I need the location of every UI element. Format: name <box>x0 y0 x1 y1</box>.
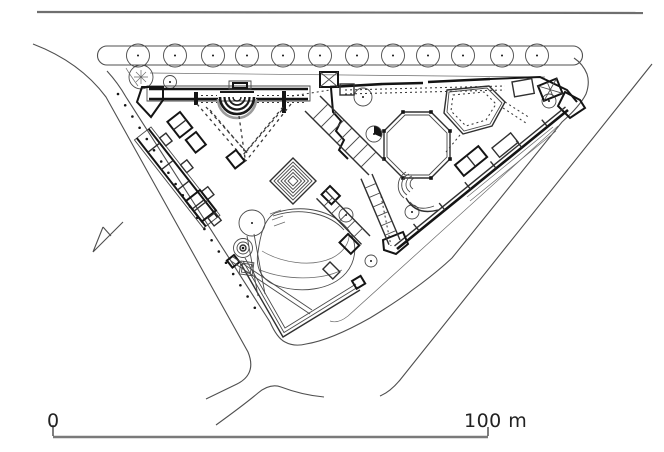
terrace-walk <box>231 257 312 314</box>
tree-icon <box>354 88 372 106</box>
se-facade-wall <box>397 110 568 249</box>
median-strip <box>98 46 583 65</box>
tree-icon <box>382 44 405 67</box>
entrance-doors <box>233 83 247 88</box>
left-road-outer-edge <box>33 44 251 399</box>
se-room <box>455 146 487 176</box>
top-road-edge <box>37 12 643 13</box>
bollard-dot <box>124 104 127 107</box>
tree-icon <box>239 210 265 236</box>
corridor-band <box>305 96 384 175</box>
bollard-dot <box>232 273 235 276</box>
bollard-dot <box>167 171 170 174</box>
west-wall-jagged <box>331 88 348 159</box>
scale-bar-ticks <box>53 425 488 436</box>
link-dashes <box>446 135 460 152</box>
ne-room <box>512 79 534 97</box>
bollard-dot <box>138 126 141 129</box>
scale-start-label: 0 <box>47 410 60 432</box>
bottom-road-edge <box>216 386 324 425</box>
canopy-line <box>150 73 545 77</box>
tree-icon <box>127 44 150 67</box>
tree-icon <box>452 44 475 67</box>
garden-path <box>262 233 349 263</box>
tree-row <box>127 44 549 67</box>
bollard-dot <box>174 183 177 186</box>
median-strip-outline <box>98 46 583 65</box>
fan-auditorium <box>218 92 256 118</box>
octagon-piers <box>382 110 452 180</box>
garden-walkway <box>247 234 265 296</box>
octagon-hall <box>382 110 452 180</box>
tree-icon <box>417 44 440 67</box>
se-gallery <box>467 127 556 201</box>
west-end-pavilion <box>137 87 163 117</box>
tree-icon <box>309 44 332 67</box>
tree-icon <box>202 44 225 67</box>
star-room <box>538 79 563 101</box>
bollard-dot <box>131 115 134 118</box>
bollard-dot <box>210 239 213 242</box>
tree-icon <box>346 44 369 67</box>
site-plan-drawing: 0 100 m <box>0 0 664 452</box>
apex-room <box>227 150 245 168</box>
accent-tree-icon <box>129 65 153 89</box>
scale-bar: 0 100 m <box>47 410 527 437</box>
se-facade-inner <box>395 107 566 246</box>
tree-icon <box>164 44 187 67</box>
tree-icon <box>526 44 549 67</box>
bollard-dot <box>160 160 163 163</box>
corridor-band <box>361 174 400 245</box>
bollard-dot <box>146 138 149 141</box>
bollard-dot <box>117 93 120 96</box>
scale-end-label: 100 m <box>464 410 527 432</box>
site-plan-page: 0 100 m <box>0 0 664 452</box>
ne-dashes <box>503 102 530 123</box>
wall-pier <box>282 91 286 113</box>
bollard-dot <box>246 295 249 298</box>
nw-corner-room <box>320 72 354 95</box>
pyramid-pavilion <box>270 158 316 204</box>
wall-pier <box>194 92 198 105</box>
hexagon-courtyard <box>444 86 505 134</box>
tree-icon <box>164 76 177 89</box>
bollard-dot <box>218 250 221 253</box>
east-building <box>305 72 585 279</box>
tree-icon <box>365 255 377 267</box>
bollard-dot <box>153 149 156 152</box>
strip-room <box>323 262 340 279</box>
tree-icon <box>236 44 259 67</box>
garden <box>227 209 365 337</box>
north-arrow-icon <box>93 222 123 252</box>
bollard-dot <box>254 306 257 309</box>
mid-room <box>186 132 206 153</box>
tree-shadow-wedge <box>374 126 382 137</box>
bollard-dot <box>239 284 242 287</box>
tree-icon <box>491 44 514 67</box>
garden-path <box>273 212 344 230</box>
tree-icon <box>272 44 295 67</box>
mid-room <box>167 112 192 138</box>
